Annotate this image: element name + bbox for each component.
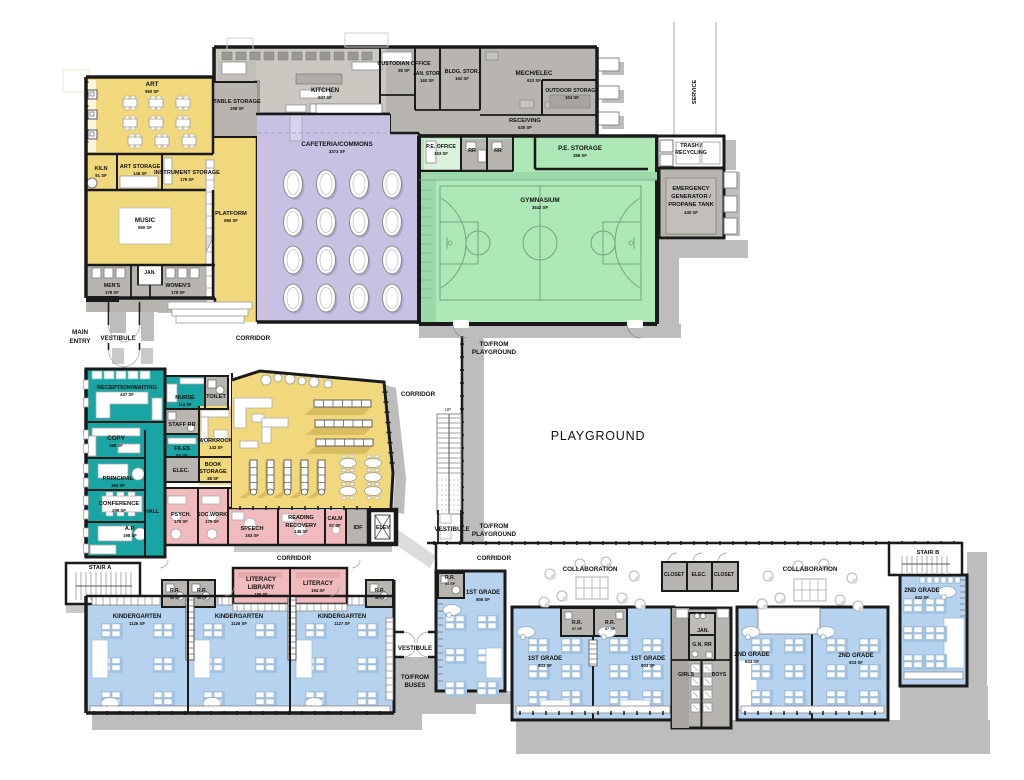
svg-text:COLLABORATION: COLLABORATION [783,566,838,573]
svg-text:CALM: CALM [328,516,343,522]
svg-text:RR: RR [494,148,502,154]
svg-text:G.N. RR: G.N. RR [692,642,712,648]
svg-text:KILN: KILN [94,166,107,172]
svg-text:P.E. STORAGE: P.E. STORAGE [558,145,602,152]
svg-text:84 SF: 84 SF [176,453,188,458]
svg-text:3373 SF: 3373 SF [329,149,346,154]
svg-text:803 SF: 803 SF [538,663,552,668]
svg-text:GYMNASIUM: GYMNASIUM [520,197,559,204]
svg-text:RECEIVING: RECEIVING [509,118,541,124]
svg-text:MAIN: MAIN [72,329,89,336]
svg-text:153 SF: 153 SF [245,533,259,538]
svg-text:56 SF: 56 SF [170,596,181,600]
svg-text:LITERACY: LITERACY [303,581,333,587]
svg-text:80 SF: 80 SF [398,68,410,73]
svg-text:BOYS: BOYS [712,672,727,678]
svg-text:WORKROOM: WORKROOM [198,438,233,444]
svg-text:803 SF: 803 SF [641,663,655,668]
svg-text:208 SF: 208 SF [230,106,244,111]
svg-text:960 SF: 960 SF [145,89,159,94]
svg-text:2ND GRADE: 2ND GRADE [734,652,769,658]
svg-text:JAN.: JAN. [144,270,156,276]
svg-text:TABLE STORAGE: TABLE STORAGE [213,99,261,105]
svg-text:SOC.WORK: SOC.WORK [197,512,227,518]
svg-text:BLDG. STOR.: BLDG. STOR. [445,69,480,75]
svg-text:JAN. STOR.: JAN. STOR. [413,71,442,77]
svg-text:179 SF: 179 SF [205,519,219,524]
svg-text:MEN'S: MEN'S [104,283,121,289]
svg-text:TRASH /: TRASH / [680,143,702,149]
svg-text:RR: RR [468,148,476,154]
svg-text:CORRIDOR: CORRIDOR [236,335,271,342]
svg-text:PSYCH.: PSYCH. [171,512,192,518]
svg-text:179 SF: 179 SF [180,177,194,182]
svg-text:153 SF: 153 SF [434,151,448,156]
svg-text:LITERACY: LITERACY [246,577,276,583]
svg-text:950 SF: 950 SF [138,225,152,230]
svg-text:CORRIDOR: CORRIDOR [277,555,312,562]
svg-text:ENTRY: ENTRY [69,338,91,345]
svg-text:833 SF: 833 SF [745,659,759,664]
svg-text:2ND GRADE: 2ND GRADE [904,588,939,594]
svg-text:P.E. OFFICE: P.E. OFFICE [426,144,456,150]
svg-text:RECYCLING: RECYCLING [675,150,707,156]
svg-text:CLOSET: CLOSET [714,572,734,578]
svg-text:CONFERENCE: CONFERENCE [99,501,140,507]
svg-text:ELEV: ELEV [376,525,390,531]
svg-text:ELEC.: ELEC. [692,572,707,578]
svg-text:162 SF: 162 SF [455,76,469,81]
svg-text:148 SF: 148 SF [133,171,147,176]
svg-text:1126 SF: 1126 SF [231,621,247,626]
svg-text:EMERGENCY: EMERGENCY [672,186,709,192]
svg-text:R.R.: R.R. [375,588,386,594]
svg-text:194 SF: 194 SF [111,483,125,488]
svg-text:937 SF: 937 SF [318,95,332,100]
svg-text:VESTIBULE: VESTIBULE [100,335,135,342]
svg-text:806 SF: 806 SF [476,597,490,602]
svg-text:CORRIDOR: CORRIDOR [477,555,512,562]
svg-text:88 SF: 88 SF [207,476,219,481]
svg-text:179 SF: 179 SF [174,519,188,524]
svg-text:TO/FROM: TO/FROM [480,341,509,348]
svg-text:91 SF: 91 SF [95,173,107,178]
svg-text:178 SF: 178 SF [171,290,185,295]
svg-text:1126 SF: 1126 SF [129,621,145,626]
svg-text:INSTRUMENT STORAGE: INSTRUMENT STORAGE [154,170,220,176]
svg-text:READING: READING [288,515,314,521]
svg-text:56 SF: 56 SF [197,596,208,600]
svg-text:VESTIBULE: VESTIBULE [434,526,469,533]
svg-text:NURSE: NURSE [175,395,195,401]
svg-text:67 SF: 67 SF [329,523,341,528]
svg-text:RECEPTION/WAITING: RECEPTION/WAITING [97,385,158,391]
svg-text:R.R.: R.R. [572,620,583,626]
svg-text:BOOK: BOOK [205,462,222,468]
svg-text:SERVICE: SERVICE [692,80,698,105]
svg-text:1ST GRADE: 1ST GRADE [528,656,562,662]
svg-text:833 SF: 833 SF [849,660,863,665]
svg-text:OUTDOOR STORAGE: OUTDOOR STORAGE [545,88,599,94]
svg-text:R.R.: R.R. [197,588,208,594]
svg-text:114 SF: 114 SF [178,402,192,407]
svg-text:UP: UP [445,407,451,412]
svg-text:A.P.: A.P. [125,526,136,532]
svg-text:104 SF: 104 SF [565,95,579,100]
svg-text:KINDERGARTEN: KINDERGARTEN [215,614,263,620]
svg-text:358 SF: 358 SF [573,153,587,158]
svg-text:299 SF: 299 SF [112,508,126,513]
svg-text:56 SF: 56 SF [375,596,386,600]
svg-text:CAFETERIA/COMMONS: CAFETERIA/COMMONS [301,141,372,148]
svg-text:630 SF: 630 SF [518,125,532,130]
svg-text:690 SF: 690 SF [224,218,238,223]
svg-text:1ST GRADE: 1ST GRADE [466,590,500,596]
svg-text:KITCHEN: KITCHEN [311,87,339,94]
svg-text:PLATFORM: PLATFORM [215,211,247,217]
svg-text:CLOSET: CLOSET [664,572,684,578]
svg-text:WOMEN'S: WOMEN'S [165,283,191,289]
svg-text:165 SF: 165 SF [109,443,123,448]
svg-text:ELEC.: ELEC. [173,468,190,474]
svg-text:R.R.: R.R. [170,588,181,594]
svg-text:199 SF: 199 SF [254,592,268,597]
svg-text:GIRLS: GIRLS [678,672,694,678]
svg-text:PRINCIPAL: PRINCIPAL [103,476,134,482]
svg-text:148 SF: 148 SF [294,529,308,534]
svg-text:LIBRARY: LIBRARY [248,585,274,591]
svg-text:JAN.: JAN. [697,628,709,634]
svg-text:TO/FROM: TO/FROM [480,523,509,530]
svg-text:143 SF: 143 SF [209,445,223,450]
svg-text:R.R.: R.R. [445,575,456,581]
svg-text:832 SF: 832 SF [915,595,929,600]
svg-text:STORAGE: STORAGE [199,469,227,475]
svg-text:178 SF: 178 SF [105,290,119,295]
svg-text:57 SF: 57 SF [572,627,583,631]
svg-text:ART: ART [146,81,159,88]
svg-text:CORRIDOR: CORRIDOR [401,391,436,398]
svg-text:1ST GRADE: 1ST GRADE [631,656,665,662]
svg-text:PLAYGROUND: PLAYGROUND [472,531,517,538]
svg-text:PLAYGROUND: PLAYGROUND [472,349,517,356]
svg-text:IDF: IDF [353,525,363,531]
svg-text:194 SF: 194 SF [311,588,325,593]
svg-text:SPEECH: SPEECH [240,526,263,532]
svg-text:TO/FROM: TO/FROM [401,674,429,681]
svg-text:CUSTODIAN OFFICE: CUSTODIAN OFFICE [377,61,431,67]
svg-text:622 SF: 622 SF [527,78,541,83]
svg-text:R.R.: R.R. [605,620,616,626]
svg-text:BUSES: BUSES [405,682,426,689]
svg-text:PLAYGROUND: PLAYGROUND [551,429,646,443]
svg-text:3542 SF: 3542 SF [532,205,549,210]
svg-text:STAIR B: STAIR B [917,550,940,556]
svg-text:COLLABORATION: COLLABORATION [563,566,618,573]
svg-text:STAFF RR: STAFF RR [168,422,195,428]
svg-text:162 SF: 162 SF [420,78,434,83]
svg-text:MECH/ELEC: MECH/ELEC [515,70,553,77]
svg-text:VESTIBULE: VESTIBULE [398,645,432,652]
svg-text:198 SF: 198 SF [123,533,137,538]
svg-text:1127 SF: 1127 SF [334,621,350,626]
svg-text:COPY: COPY [107,435,126,442]
svg-text:KINDERGARTEN: KINDERGARTEN [318,614,366,620]
svg-text:HALL: HALL [145,509,160,515]
svg-text:TOILET: TOILET [206,394,226,400]
svg-text:447 SF: 447 SF [120,392,134,397]
svg-text:2ND GRADE: 2ND GRADE [838,653,873,659]
svg-text:PROPANE TANK: PROPANE TANK [668,202,714,208]
svg-text:GENERATOR /: GENERATOR / [671,194,711,200]
svg-text:440 SF: 440 SF [684,210,698,215]
svg-text:FILES: FILES [174,446,190,452]
svg-text:STAIR A: STAIR A [89,565,112,571]
svg-text:KINDERGARTEN: KINDERGARTEN [113,614,161,620]
svg-text:57 SF: 57 SF [605,627,616,631]
svg-text:51 SF: 51 SF [445,582,456,586]
svg-text:MUSIC: MUSIC [135,217,156,224]
